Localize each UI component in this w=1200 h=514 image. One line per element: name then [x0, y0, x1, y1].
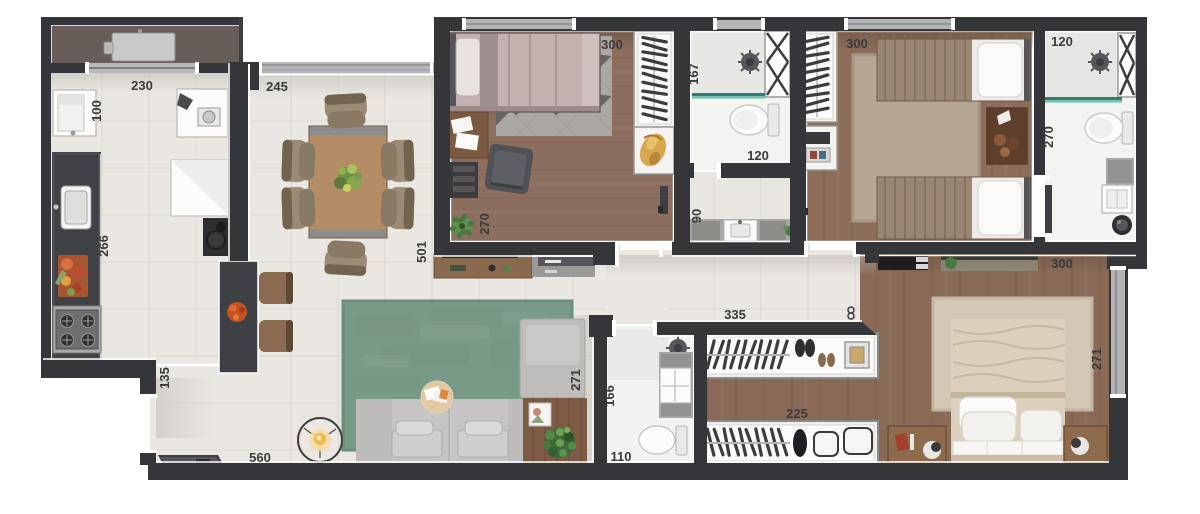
svg-text:271: 271: [568, 369, 583, 391]
svg-text:266: 266: [96, 235, 111, 257]
svg-text:225: 225: [786, 406, 808, 421]
svg-text:167: 167: [686, 63, 701, 85]
svg-text:120: 120: [747, 148, 769, 163]
svg-text:300: 300: [601, 37, 623, 52]
svg-text:245: 245: [266, 79, 288, 94]
svg-text:270: 270: [477, 213, 492, 235]
svg-text:560: 560: [249, 450, 271, 465]
svg-text:300: 300: [846, 36, 868, 51]
svg-text:300: 300: [1051, 256, 1073, 271]
svg-text:120: 120: [1051, 34, 1073, 49]
svg-text:230: 230: [131, 78, 153, 93]
svg-text:166: 166: [602, 385, 617, 407]
svg-text:100: 100: [89, 100, 104, 122]
svg-text:270: 270: [1041, 126, 1056, 148]
svg-text:110: 110: [611, 449, 632, 464]
svg-text:90: 90: [689, 209, 704, 223]
svg-text:501: 501: [414, 241, 429, 263]
svg-text:271: 271: [1089, 348, 1104, 370]
svg-text:135: 135: [157, 367, 172, 389]
svg-text:335: 335: [724, 307, 746, 322]
